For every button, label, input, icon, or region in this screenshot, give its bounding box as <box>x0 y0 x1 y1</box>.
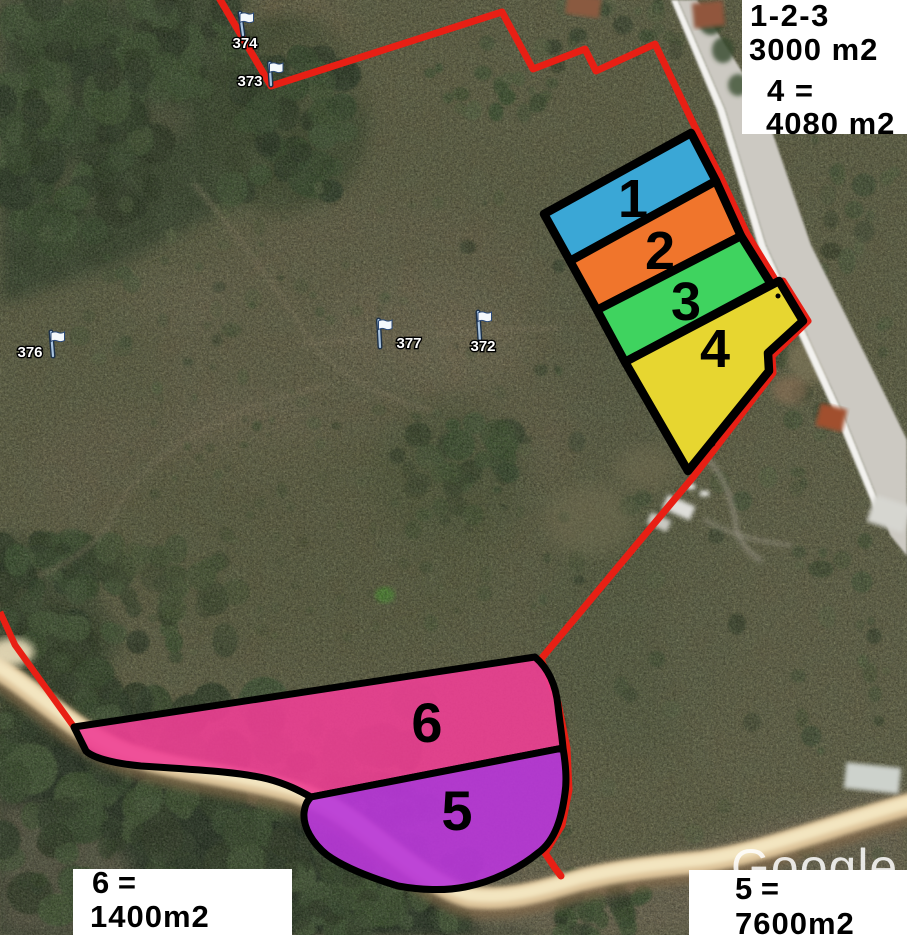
svg-text:4: 4 <box>700 319 730 379</box>
svg-text:4 =: 4 = <box>767 73 814 108</box>
svg-text:1: 1 <box>618 169 648 229</box>
svg-text:3000 m2: 3000 m2 <box>749 32 878 67</box>
svg-text:376: 376 <box>17 344 42 361</box>
svg-text:377: 377 <box>396 335 421 352</box>
svg-text:7600m2: 7600m2 <box>735 906 855 935</box>
svg-text:372: 372 <box>470 338 495 355</box>
svg-text:373: 373 <box>237 73 262 90</box>
svg-text:5 =: 5 = <box>735 871 779 906</box>
svg-text:4080 m2: 4080 m2 <box>766 106 895 141</box>
svg-text:6 =: 6 = <box>92 865 136 900</box>
svg-text:374: 374 <box>232 35 258 52</box>
svg-text:1-2-3: 1-2-3 <box>750 0 830 33</box>
svg-text:5: 5 <box>441 779 472 842</box>
svg-text:3: 3 <box>671 272 701 332</box>
svg-text:6: 6 <box>411 691 442 754</box>
svg-text:1400m2: 1400m2 <box>90 899 210 934</box>
